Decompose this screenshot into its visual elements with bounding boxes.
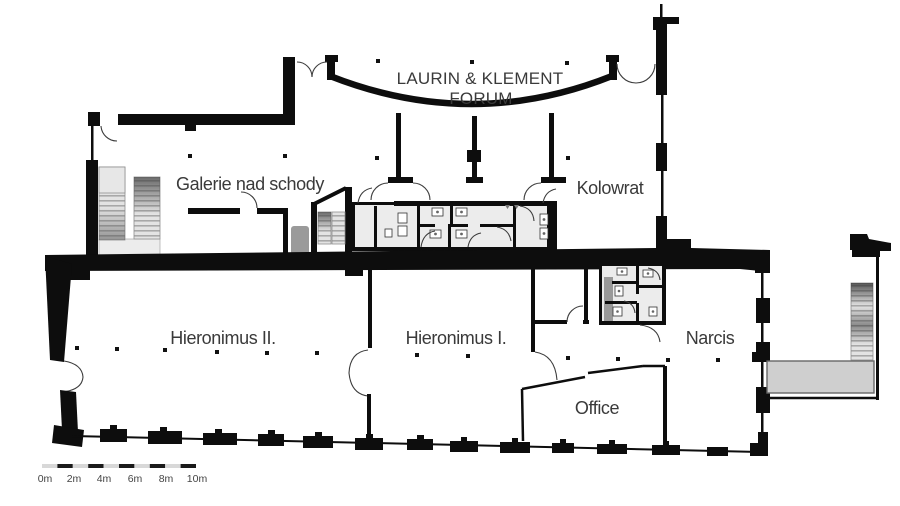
wc-block-center: [352, 188, 557, 251]
wall: [374, 206, 377, 248]
wall-pier: [758, 432, 768, 444]
wall: [850, 234, 891, 257]
wall: [283, 208, 288, 258]
column-dots: [75, 346, 720, 362]
wall: [88, 112, 100, 126]
wall: [636, 266, 639, 294]
wall: [448, 224, 468, 227]
scale-label-6m: 6m: [128, 473, 143, 485]
door-arc-icon: [543, 189, 556, 203]
wall-pier: [185, 125, 196, 131]
door-arc-icon: [349, 373, 368, 396]
wall: [257, 208, 287, 214]
wall: [472, 116, 477, 179]
wall: [663, 366, 667, 443]
wall: [599, 266, 602, 324]
wall: [86, 160, 98, 258]
door-arc-icon: [241, 192, 257, 208]
south-facade: [72, 425, 760, 456]
wall: [636, 303, 639, 321]
wall: [599, 321, 666, 325]
room-label-narcis: Narcis: [686, 328, 735, 348]
wall-pier: [752, 352, 756, 362]
wall: [480, 224, 513, 227]
upper-floor: LAURIN & KLEMENT FORUM Galerie nad schod…: [86, 4, 679, 261]
wall: [876, 256, 879, 400]
facade-piers: [100, 425, 728, 456]
wall: [118, 114, 295, 125]
wall: [660, 4, 663, 17]
scale-bar: 0m 2m 4m 6m 8m 10m: [38, 464, 208, 485]
floor-plan-svg: LAURIN & KLEMENT FORUM Galerie nad schod…: [0, 0, 900, 506]
stair-shade: [134, 177, 160, 239]
stair-shade: [851, 283, 873, 360]
wall: [541, 177, 566, 183]
wall: [311, 202, 317, 258]
wall: [513, 201, 516, 247]
wall: [352, 204, 355, 248]
lower-floor: Hieronimus II. Hieronimus I. Narcis Offi…: [45, 252, 770, 456]
wall: [549, 113, 554, 179]
door-arc-icon: [567, 306, 583, 322]
room-label-forum-line2: FORUM: [449, 89, 512, 108]
wall-pier: [756, 342, 770, 362]
door-arc-icon: [617, 64, 636, 83]
stair-top: [99, 167, 125, 193]
wall: [605, 301, 637, 304]
wall: [533, 320, 567, 324]
wall: [45, 256, 72, 362]
floor-plan: LAURIN & KLEMENT FORUM Galerie nad schod…: [0, 0, 900, 506]
elevator-shaft: [604, 277, 613, 321]
wall-pier: [755, 252, 770, 273]
scale-label-2m: 2m: [67, 473, 82, 485]
wall: [283, 57, 295, 125]
scale-label-4m: 4m: [97, 473, 112, 485]
wall: [60, 390, 78, 432]
wall-pier: [656, 30, 667, 95]
door-arc-icon: [524, 183, 541, 200]
wall: [417, 224, 435, 227]
wall: [547, 201, 557, 251]
wall-pier: [756, 298, 770, 323]
wall: [367, 394, 371, 438]
wall: [345, 187, 352, 258]
door-arc-icon: [64, 361, 83, 377]
room-label-kolowrat: Kolowrat: [577, 178, 644, 198]
wc-block-narcis: [599, 266, 666, 342]
room-label-office: Office: [575, 398, 620, 418]
scale-label-8m: 8m: [159, 473, 174, 485]
wall: [522, 389, 523, 441]
wall-pier: [656, 143, 667, 171]
exterior-stair-right: [765, 234, 891, 400]
door-arc-icon: [101, 126, 117, 141]
wall: [466, 177, 483, 183]
wall-pier: [467, 150, 481, 162]
scale-label-10m: 10m: [187, 473, 208, 485]
wall: [612, 281, 638, 284]
door-arc-icon: [636, 64, 655, 83]
wall: [325, 55, 338, 62]
kolowrat-east-wall: [653, 4, 679, 258]
wall-diagonal: [588, 366, 643, 373]
wall: [750, 443, 768, 456]
stair-small: [332, 212, 345, 244]
wall: [448, 227, 451, 248]
wall: [450, 204, 453, 225]
wall: [388, 177, 413, 183]
east-wall: [750, 252, 770, 456]
wall: [653, 17, 679, 30]
door-arc-icon: [297, 62, 312, 77]
door-arc-icon: [312, 62, 327, 77]
wall: [188, 208, 240, 214]
room-label-hieronimus-ii: Hieronimus II.: [170, 328, 275, 348]
wall: [345, 268, 363, 276]
stair-shade: [99, 193, 125, 240]
wall: [531, 266, 535, 352]
corridor: [767, 361, 874, 393]
wall: [662, 266, 666, 325]
door-arc-icon: [640, 325, 660, 342]
staircase-left: [99, 167, 160, 261]
wall-diagonal: [522, 377, 585, 389]
door-arc-icon: [358, 188, 372, 203]
door-arc-icon: [62, 377, 83, 392]
scale-label-0m: 0m: [38, 473, 53, 485]
room-label-galerie: Galerie nad schody: [176, 174, 324, 194]
wall: [639, 285, 665, 288]
room-label-forum-line1: LAURIN & KLEMENT: [397, 69, 564, 88]
scale-bar-segments: [42, 464, 196, 468]
room-label-hieronimus-i: Hieronimus I.: [406, 328, 507, 348]
wall: [91, 125, 94, 161]
stair-shade: [318, 212, 331, 244]
door-arc-icon: [371, 183, 388, 200]
wall: [368, 266, 372, 348]
door-arc-icon: [413, 183, 430, 200]
elevator-shaft: [291, 226, 309, 256]
door-arc-icon: [349, 350, 368, 373]
stair-landing: [99, 239, 160, 255]
wall: [584, 266, 588, 324]
wall: [396, 113, 401, 179]
door-arc-icon: [535, 352, 557, 380]
wall: [606, 55, 619, 62]
